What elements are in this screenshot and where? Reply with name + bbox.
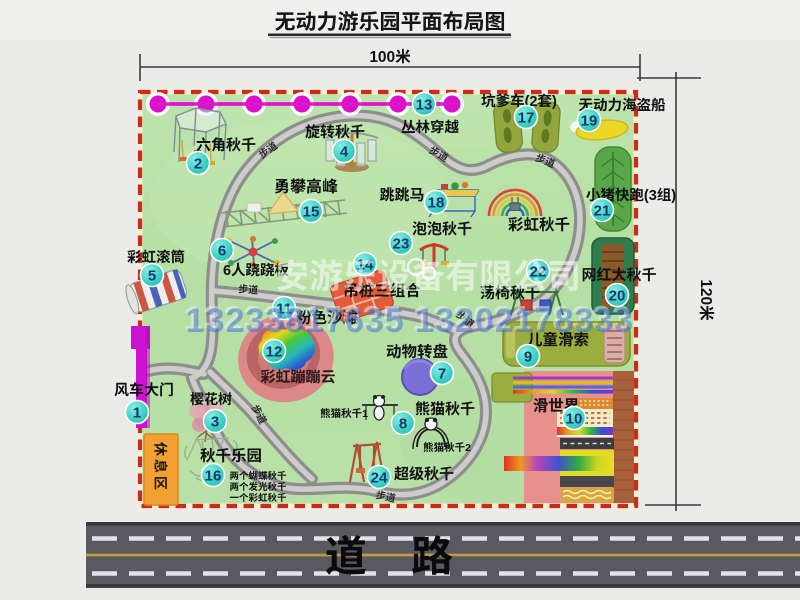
svg-text:18: 18 (428, 194, 445, 211)
svg-text:1: 1 (133, 404, 141, 421)
svg-text:5: 5 (148, 267, 156, 284)
svg-text:15: 15 (303, 203, 320, 220)
svg-text:120: 120 (697, 279, 714, 305)
svg-text:17: 17 (518, 109, 535, 126)
svg-text:): ) (552, 94, 557, 110)
svg-text:8: 8 (399, 415, 407, 432)
svg-text:9: 9 (524, 348, 532, 365)
svg-text:6: 6 (218, 242, 226, 259)
svg-text:13233817635 13202178333: 13233817635 13202178333 (186, 302, 634, 340)
svg-text:7: 7 (438, 365, 446, 382)
svg-text:4: 4 (340, 143, 349, 160)
svg-text:1: 1 (362, 408, 368, 420)
svg-text:(3: (3 (644, 188, 657, 204)
svg-text:16: 16 (205, 467, 222, 484)
svg-text:21: 21 (594, 202, 611, 219)
svg-text:13: 13 (416, 96, 433, 113)
svg-text:23: 23 (393, 235, 410, 252)
svg-text:19: 19 (581, 112, 598, 129)
svg-text:): ) (671, 188, 676, 204)
svg-text:2: 2 (465, 442, 471, 454)
svg-text:10: 10 (566, 410, 583, 427)
svg-text:24: 24 (371, 469, 388, 486)
svg-text:6: 6 (223, 263, 231, 279)
svg-text:2: 2 (194, 155, 202, 172)
svg-text:100: 100 (369, 49, 395, 66)
svg-text:3: 3 (211, 413, 219, 430)
svg-text:12: 12 (266, 343, 283, 360)
